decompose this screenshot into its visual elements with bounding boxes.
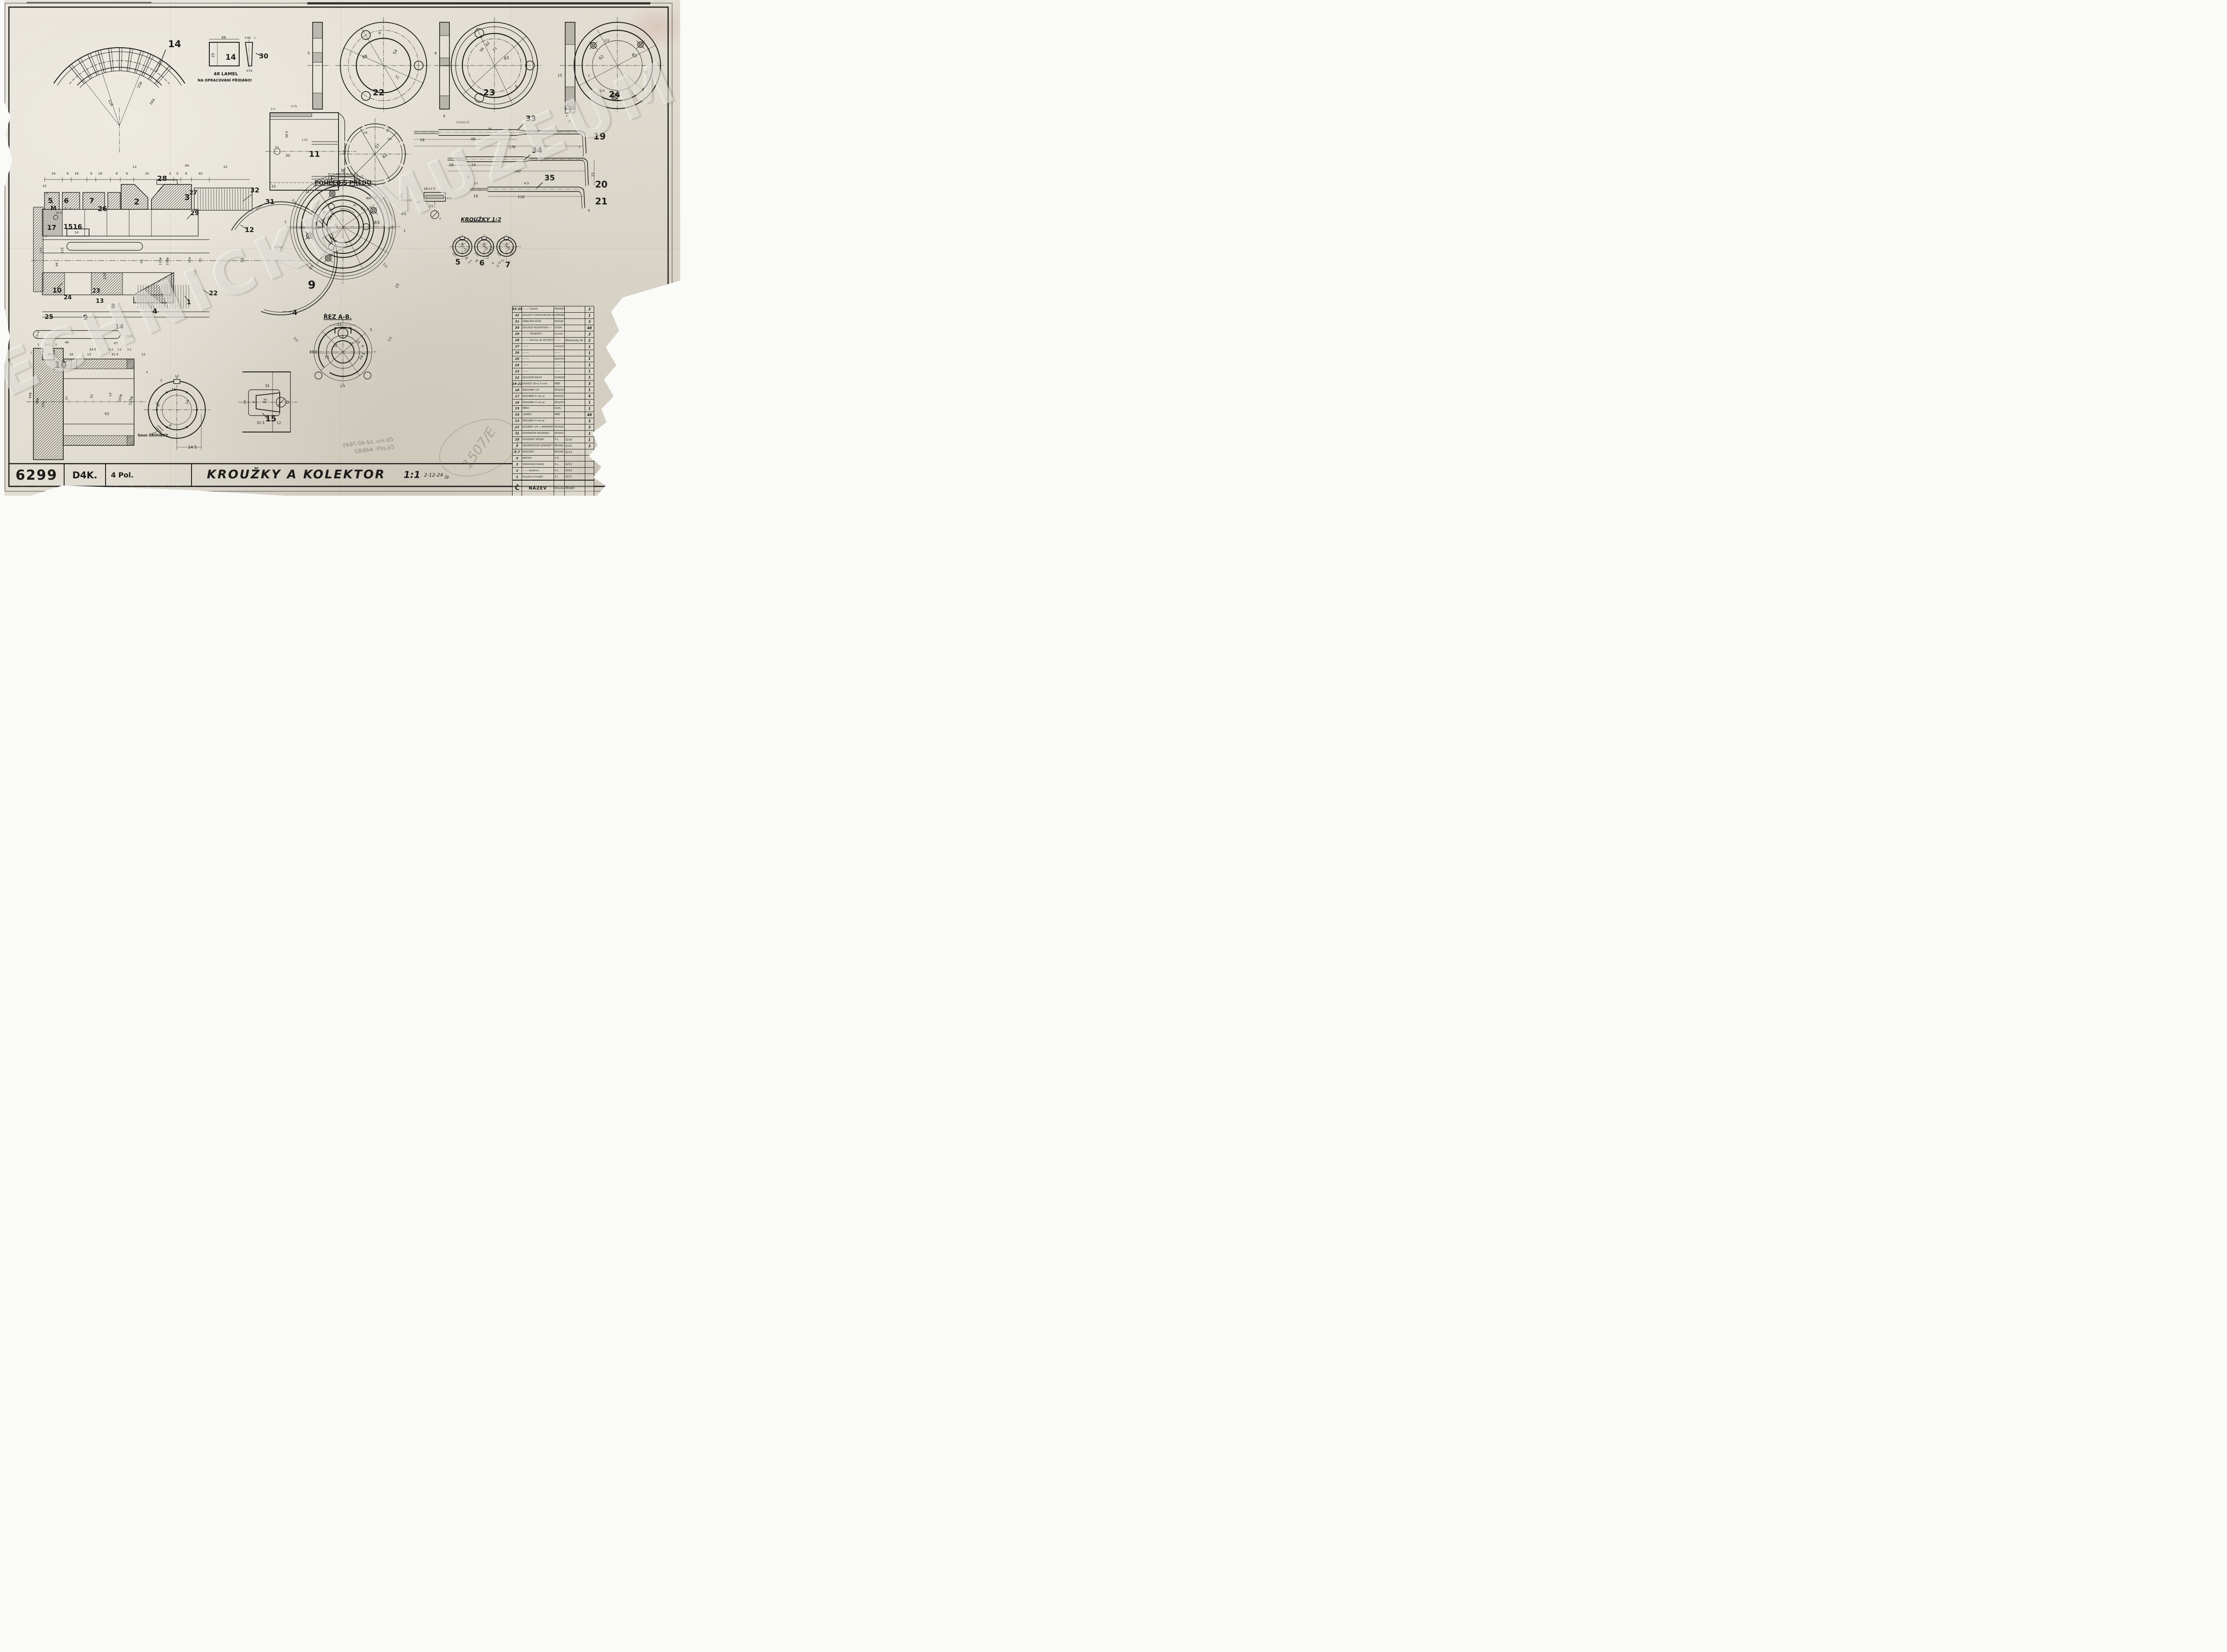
table-cell	[564, 375, 585, 380]
dim-label: 71	[199, 258, 202, 262]
dim-label: 5	[370, 328, 372, 332]
dim-label: 9	[378, 31, 380, 35]
table-cell: —··— TRUBIČKY	[522, 331, 554, 337]
table-cell	[564, 406, 585, 412]
part-callout: KROUŽKY 1:2	[461, 216, 502, 223]
table-cell	[585, 449, 594, 455]
dim-label: 58φ	[36, 398, 39, 404]
table-cell: 5216	[564, 437, 585, 443]
table-cell	[564, 306, 585, 312]
dim-label: 55	[263, 398, 269, 404]
table-cell: ŽELEZO	[554, 387, 564, 393]
dim-label: 125	[496, 251, 502, 257]
dim-label: 14	[75, 231, 79, 234]
dim-label: 12	[277, 421, 281, 425]
table-cell	[585, 474, 594, 480]
table-cell: 1	[585, 406, 594, 412]
table-cell: 19-21	[513, 381, 522, 387]
dim-label: 12	[142, 353, 146, 356]
table-row: 14LAMELYMĚĎ48	[513, 412, 594, 418]
table-cell: 3	[513, 461, 522, 467]
table-cell: K.Ž.	[554, 456, 564, 461]
dim-label: 7	[566, 115, 567, 118]
part-callout: 5mm ŠROUBKY.	[138, 432, 169, 437]
dim-label: 18×1·5	[424, 187, 435, 191]
table-cell: 29	[513, 331, 522, 337]
dim-label: 13	[133, 165, 137, 169]
dim-label: 5	[55, 343, 57, 347]
table-cell: 10	[513, 437, 522, 443]
dim-label: 94	[55, 262, 59, 266]
dim-label: 35	[145, 172, 149, 175]
part-callout: 17	[47, 224, 57, 232]
table-row: 18ŠROUBEK 1/4″ŽELEZO1	[513, 387, 594, 393]
dim-label: 9	[588, 209, 590, 212]
part-callout: 15	[265, 414, 276, 424]
parts-table: 33-35—··— VodičůMIKANIT332JSOLACE STAHOV…	[512, 306, 594, 496]
dim-label: 2	[160, 379, 162, 382]
dim-label: 94	[312, 226, 318, 231]
part-callout: 10	[53, 286, 62, 294]
part-callout: 19	[593, 131, 606, 142]
table-cell: LAMELY	[522, 412, 554, 418]
part-callout: 48 LAMEL	[214, 72, 238, 77]
table-cell: —·—	[554, 362, 564, 368]
table-cell: Š.L.	[554, 468, 564, 473]
parts-table-header: Č NÁZEV Hmota Model	[513, 480, 594, 496]
table-row: 2—·— KolektruŠ.L.5212	[513, 467, 594, 473]
header-qty-col	[585, 481, 594, 496]
part-callout: 10	[54, 359, 67, 370]
dim-label: 18	[52, 172, 56, 175]
part-callout: 5	[455, 258, 461, 267]
dim-label: 125φ	[128, 396, 133, 406]
dim-label: 14·5	[467, 259, 473, 265]
table-cell: VODIČE 18×1·5 mm	[522, 381, 554, 387]
part-callout: 22	[373, 88, 384, 98]
dim-label: 1/3	[600, 89, 604, 93]
table-cell: —·—	[554, 338, 564, 343]
table-cell: 30	[513, 325, 522, 331]
date-value: 2-12-24	[424, 472, 443, 478]
dim-label: 14	[185, 399, 190, 405]
table-cell: ROUBÍKY 1/4″ s MATKAMI A PODLOŽK.	[522, 424, 554, 430]
table-cell: 3	[585, 331, 594, 337]
table-row: 13ŠROUBKY 4 mm φ—·—3	[513, 418, 594, 424]
dim-label: 125	[451, 252, 457, 257]
table-cell: MIKANIT	[554, 306, 564, 312]
dim-label: 6	[361, 344, 365, 348]
dim-label: 5	[65, 207, 67, 210]
header-model-col: Model	[564, 481, 585, 496]
part-callout: 31	[265, 198, 275, 206]
dim-label: 6	[67, 172, 69, 175]
dim-label: 4·5	[447, 197, 451, 200]
dim-label: 124φ	[274, 245, 282, 249]
dim-label: 118	[518, 195, 524, 199]
dim-label: 18	[490, 261, 494, 265]
table-cell: KROUŽKY	[522, 449, 554, 455]
table-cell: ŠROUBEK 4 mm φ	[522, 400, 554, 405]
table-cell: —·—	[554, 418, 564, 424]
dim-label: 47	[114, 342, 118, 345]
dim-label: 1	[254, 37, 256, 40]
dim-label: 7	[568, 120, 570, 123]
table-cell	[564, 393, 585, 399]
dim-label: 49	[221, 36, 226, 40]
table-cell: 18	[513, 387, 522, 393]
table-cell: 1	[585, 400, 594, 405]
dim-label: 30	[350, 342, 353, 345]
dim-label: 1/3	[340, 384, 345, 388]
dim-label: 22	[337, 322, 342, 326]
dim-label: 7·5	[44, 192, 49, 195]
part-callout: 1	[187, 299, 191, 306]
dim-label: 30	[353, 204, 356, 207]
table-cell: BRONZ	[554, 449, 564, 455]
table-cell	[564, 325, 585, 331]
dim-label: 16	[171, 388, 176, 392]
table-cell	[564, 431, 585, 436]
table-row: 23—··——·—1	[513, 368, 594, 374]
table-row: 25—··—lepenka1	[513, 356, 594, 362]
table-cell: 1	[585, 356, 594, 362]
part-callout: 2	[134, 197, 140, 207]
table-cell	[564, 313, 585, 318]
dim-label: 18	[420, 138, 424, 142]
dim-label: 116φ	[159, 257, 162, 265]
table-cell: MOSAZ	[554, 431, 564, 436]
dim-label: 18	[449, 163, 453, 167]
blueprint-sheet: 1415816411649251448 LAMELNA OPRACOVÁNÍ P…	[0, 0, 680, 496]
table-cell	[564, 356, 585, 362]
part-callout: 9	[308, 278, 315, 291]
part-callout: 14	[115, 323, 124, 330]
table-cell	[564, 424, 585, 430]
dim-label: 164	[149, 98, 156, 106]
dim-label: 31·5	[111, 353, 118, 356]
table-cell: 12	[513, 424, 522, 430]
dim-label: 7	[439, 217, 441, 221]
dim-label: 3·5	[127, 348, 131, 351]
dim-label: 18	[461, 243, 464, 246]
dim-label: 9	[252, 401, 256, 403]
part-callout: 15	[64, 223, 73, 231]
table-cell: 3	[585, 424, 594, 430]
dim-label: 1/3	[308, 265, 314, 271]
dim-label: 62	[485, 41, 490, 47]
dim-label: 18	[341, 168, 345, 172]
dim-label: 4	[443, 114, 445, 118]
scan-edge	[307, 2, 650, 4]
table-row: 30JSOLACE KOLEKTORU —SLÍDA.48	[513, 325, 594, 331]
part-callout: 23	[92, 288, 100, 294]
dim-label: 18	[75, 172, 79, 175]
dim-label: 71	[492, 46, 498, 53]
dim-label: 1·5	[117, 348, 122, 351]
part-callout: POHLED S PŘEDU	[314, 179, 371, 187]
table-cell: 3	[585, 319, 594, 325]
part-callout: 20	[595, 179, 608, 190]
dim-label: 5	[69, 207, 71, 210]
table-cell: 1	[585, 313, 594, 318]
parts-table-rows: 33-35—··— VodičůMIKANIT332JSOLACE STAHOV…	[513, 306, 594, 480]
table-row: 16ŠROUBEK 4 mm φŽELEZO1	[513, 399, 594, 405]
table-cell: ŠROUBEK 5 mm φ	[522, 393, 554, 399]
part-callout: 25	[45, 314, 53, 321]
table-cell: 4	[585, 393, 594, 399]
table-cell: —··—	[522, 344, 554, 350]
header-item-col: Č	[513, 481, 522, 496]
dim-label: 93	[105, 412, 109, 416]
table-cell: PÉRO	[522, 406, 554, 412]
dim-label: 158φ	[166, 257, 169, 265]
table-cell: JSOLACE STAHOVACÍHO KRUHU	[522, 313, 554, 318]
table-cell: —··—	[522, 368, 554, 374]
table-row: 17ŠROUBEK 5 mm φMOSAZ4	[513, 393, 594, 399]
dim-label: 6	[323, 210, 325, 214]
dim-label: 158	[136, 81, 143, 89]
table-cell: JSOLACE KOLEKTORU —	[522, 325, 554, 331]
part-callout: 23	[483, 88, 495, 98]
dim-label: 1/3	[510, 253, 514, 255]
part-callout: 34	[532, 146, 542, 155]
dim-label: asi 19	[366, 196, 377, 200]
dim-label: 9·86	[245, 37, 251, 40]
dim-label: 1/8	[363, 131, 367, 135]
table-cell: MOSAZ	[554, 393, 564, 399]
dim-label: 14	[355, 339, 361, 345]
dim-label: 23	[394, 283, 400, 289]
dim-label: m	[489, 127, 492, 131]
table-cell: 2	[585, 338, 594, 343]
table-cell: 5215	[564, 443, 585, 449]
table-cell: 1	[585, 368, 594, 374]
dim-label: 1·5	[444, 193, 447, 196]
dim-label: 142	[514, 169, 521, 173]
dim-label: 125	[474, 251, 480, 257]
dim-label: 4	[146, 371, 148, 374]
dim-label: 15	[558, 73, 562, 78]
table-cell: MATICE	[522, 456, 554, 461]
table-row: 19-21VODIČE 18×1·5 mmMĚĎ3	[513, 380, 594, 387]
table-cell: ŠROUBKY 4 mm φ	[522, 418, 554, 424]
dim-label: 1/3	[387, 336, 393, 343]
dim-label: 55φ	[41, 401, 45, 408]
table-cell: MOSAZ	[554, 319, 564, 325]
part-callout: 16	[73, 223, 82, 231]
table-cell: 48	[585, 412, 594, 418]
table-cell: 1	[513, 474, 522, 480]
dim-label: 71	[394, 74, 400, 80]
dim-label: 18	[98, 172, 102, 175]
dim-label: 83	[631, 53, 638, 59]
table-cell	[564, 456, 585, 461]
part-callout: 7	[89, 196, 94, 205]
table-row: 9SEGMENTOVÉ KONTAKTYBRONZ52153	[513, 443, 594, 449]
dim-label: 88	[362, 54, 368, 60]
dim-label: 51	[486, 256, 490, 260]
table-cell	[585, 468, 594, 473]
table-cell: —·—	[554, 368, 564, 374]
table-cell: —·— Kolektru	[522, 468, 554, 473]
table-cell: 15	[513, 406, 522, 412]
table-cell	[585, 456, 594, 461]
dim-label: 10·5	[56, 212, 62, 215]
table-cell: 1	[585, 387, 594, 393]
dim-label: 1/4	[155, 401, 161, 408]
dim-label: 5	[307, 51, 310, 55]
dim-label: 10·5	[44, 343, 50, 347]
dim-label: 96	[475, 259, 479, 263]
table-row: 15PÉROOCEL1	[513, 405, 594, 412]
table-cell: 5-7	[513, 449, 522, 455]
table-cell: 24	[513, 362, 522, 368]
dim-label: 4·5	[524, 182, 529, 185]
part-callout: 32	[250, 186, 260, 194]
table-cell: KONTAKTNÍ POUZDRO	[522, 431, 554, 436]
dim-label: 55	[90, 394, 94, 399]
table-cell: GUMOID	[554, 375, 564, 380]
signature: Jg.	[445, 475, 450, 479]
table-cell: 32	[513, 313, 522, 318]
dim-label: 4·5	[401, 212, 406, 216]
dim-label: 1	[30, 351, 32, 355]
dim-label: 6	[434, 51, 436, 55]
part-callout: 14	[168, 39, 181, 49]
dim-label: 10	[271, 184, 276, 188]
table-cell: BRONZ	[554, 443, 564, 449]
dim-label: mikanit.	[456, 120, 471, 124]
dim-label: 8	[116, 172, 118, 175]
dim-label: 62	[598, 54, 605, 61]
table-cell: OCEL	[554, 406, 564, 412]
table-cell	[564, 331, 585, 337]
dim-label: 1	[284, 220, 286, 224]
table-row: 1Pouzdro kroužkůŠ.L.5211	[513, 473, 594, 480]
dim-label: 9	[176, 172, 178, 175]
dim-label: 14·6	[40, 247, 43, 253]
table-cell: 1	[585, 437, 594, 443]
drawing-scale: 1:1	[399, 464, 425, 485]
table-cell	[564, 412, 585, 418]
table-cell: Š.L.	[554, 474, 564, 480]
part-callout: 21	[595, 196, 608, 207]
table-cell: 25	[513, 356, 522, 362]
part-callout: 28	[157, 174, 167, 183]
dim-label: 57	[65, 396, 69, 400]
dim-label: 7	[579, 146, 580, 149]
table-cell: —··—	[522, 350, 554, 356]
table-row: 27—··—mikanit1	[513, 343, 594, 350]
dim-label: 6·59	[246, 69, 253, 73]
drawing-number: 6299	[9, 465, 64, 485]
table-row: 12ROUBÍKY 1/4″ s MATKAMI A PODLOŽK.MOSAZ…	[513, 424, 594, 430]
dim-label: 31·5	[257, 421, 265, 425]
dim-label: 54	[392, 49, 399, 55]
table-cell	[564, 368, 585, 374]
table-cell: 3	[585, 381, 594, 387]
table-cell: 5213	[564, 461, 585, 467]
scan-edge	[27, 2, 151, 4]
table-cell: 4	[513, 456, 522, 461]
table-row: 5-7KROUŽKYBRONZ5214	[513, 449, 594, 455]
table-cell	[564, 387, 585, 393]
dim-label: 7	[588, 74, 590, 78]
table-cell: ŽELEZO	[554, 400, 564, 405]
dim-label: 8	[185, 172, 187, 175]
table-row: 33-35—··— VodičůMIKANIT3	[513, 306, 594, 312]
dim-label: 6	[126, 172, 128, 175]
dim-label: 18	[473, 194, 478, 198]
table-row: 28—··— Konusy do KOLEKTORU—·—Meinovsky №…	[513, 337, 594, 343]
table-row: 31KÁBLOVÁ OČKAMOSAZ3	[513, 318, 594, 325]
dim-label: 58·5	[285, 131, 289, 138]
dim-label: 62	[343, 150, 347, 155]
table-cell: 14	[513, 412, 522, 418]
part-callout: 6	[479, 259, 485, 268]
part-callout: ŘEZ A-B.	[323, 314, 351, 321]
table-cell: 2	[513, 468, 522, 473]
dim-label: 71	[643, 70, 649, 75]
table-row: 26—··——·—1	[513, 350, 594, 356]
table-cell	[564, 400, 585, 405]
part-callout: 6	[64, 196, 69, 205]
table-cell: 26	[513, 350, 522, 356]
table-cell: —··—	[522, 356, 554, 362]
table-cell: —·—	[554, 350, 564, 356]
table-cell: 23	[513, 368, 522, 374]
table-cell: 1	[585, 375, 594, 380]
dim-label: 1/3	[399, 193, 404, 199]
dim-label: 14	[109, 392, 112, 396]
table-cell: Š.L.	[554, 461, 564, 467]
dim-label: 112	[193, 270, 197, 277]
table-cell: —··— Konusy do KOLEKTORU	[522, 338, 554, 343]
table-cell: 3	[585, 306, 594, 312]
table-cell: Meinovsky № 5133	[564, 338, 585, 343]
dim-label: 22	[505, 243, 508, 246]
table-cell: LEPENKA 1/2	[554, 313, 564, 318]
table-cell: 28	[513, 338, 522, 343]
dim-label: 45	[140, 260, 143, 264]
dim-label: 25	[43, 184, 47, 188]
dim-label: 21·5	[107, 348, 114, 351]
table-cell: 48	[585, 325, 594, 331]
dim-label: mikanit.	[400, 199, 412, 202]
dim-label: 83	[374, 220, 380, 225]
table-cell	[564, 381, 585, 387]
table-cell: 1	[585, 431, 594, 436]
dim-label: 6	[90, 172, 93, 175]
part-callout: 35	[544, 174, 555, 183]
dim-label: 50	[241, 258, 245, 262]
table-cell: 22	[513, 375, 522, 380]
table-cell: 9	[513, 443, 522, 449]
table-cell: Gumid	[554, 331, 564, 337]
part-callout: 11	[309, 150, 320, 159]
dim-label: 103φ	[118, 394, 123, 402]
dim-label: 5	[573, 112, 575, 115]
dim-label: 13	[87, 353, 91, 356]
table-row: 32JSOLACE STAHOVACÍHO KRUHULEPENKA 1/21	[513, 312, 594, 318]
dim-label: 100	[309, 350, 317, 355]
part-callout: 8	[111, 303, 115, 310]
dim-label: 12	[175, 375, 179, 378]
part-callout: 27	[189, 190, 197, 196]
dim-label: 40	[199, 172, 203, 175]
dim-label: 56	[479, 47, 485, 53]
